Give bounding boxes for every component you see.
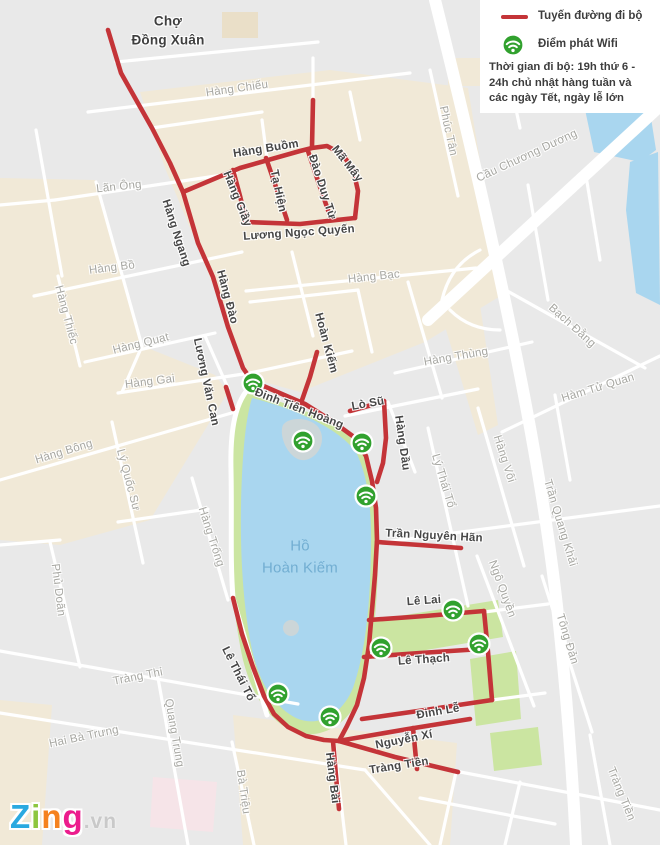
wifi-legend-label: Điểm phát Wifi [538,38,618,50]
zing-vn-logo[interactable]: Zing.vn [10,798,117,836]
turtle-tower-island [283,620,299,636]
wifi-legend-icon [501,33,525,57]
wifi-point-icon[interactable] [268,684,289,705]
wifi-point-icon[interactable] [356,486,377,507]
legend-panel: Tuyến đường đi bộ Điểm phát Wifi Thời gi… [480,0,660,113]
wifi-point-icon[interactable] [371,638,392,659]
wifi-point-icon[interactable] [352,433,373,454]
walking-hours-note: Thời gian đi bộ: 19h thứ 6 - 24h chủ nhậ… [489,60,653,107]
logo-letter: g [63,798,84,835]
logo-letter: n [41,798,62,835]
logo-letter: Z [10,798,31,835]
walking-route-swatch [501,15,528,19]
walking-route [377,542,461,548]
logo-suffix: .vn [84,810,117,833]
wifi-point-icon[interactable] [443,600,464,621]
logo-letter: i [31,798,41,835]
wifi-point-icon[interactable] [293,431,314,452]
walking-route [226,387,233,409]
map-canvas[interactable]: ChợĐồng XuânHàng ChiếuHàng BuồmMã MâyĐào… [0,0,660,845]
wifi-point-icon[interactable] [320,707,341,728]
walking-route [362,700,492,719]
walking-route-legend-label: Tuyến đường đi bộ [538,10,642,22]
wifi-point-icon[interactable] [243,373,264,394]
walking-route [312,100,313,147]
base-map [0,0,660,845]
walking-route [377,401,386,482]
wifi-point-icon[interactable] [469,634,490,655]
